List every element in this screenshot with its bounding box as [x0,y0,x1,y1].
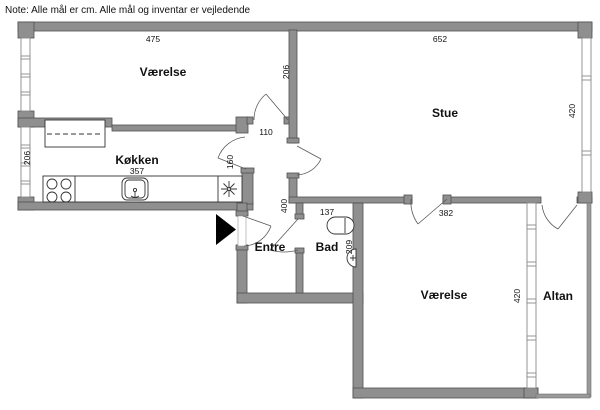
door-arc-vaerelse-top [254,94,266,120]
dim-vaerelse-top-width: 475 [146,34,160,44]
wall-segment [18,22,34,38]
door-leaf-entrance [243,216,271,226]
front-door-leaf [238,216,246,246]
fixtures [43,120,356,267]
dim-hall-width: 110 [259,127,273,137]
wall-segment [289,30,297,143]
dim-stue-width: 652 [433,34,447,44]
dim-koekken-opening: 160 [225,155,235,169]
window-tick [527,336,536,340]
balcony-rail-right [587,203,591,397]
wall-segment [236,117,248,133]
wall-segment [289,197,412,203]
dim-hall-length: 400 [279,199,289,213]
window-tick [21,92,30,95]
burner [61,179,71,189]
dim-vaerelse-bottom-width: 382 [439,208,453,218]
door-jamb [236,211,248,216]
entrance-arrow-icon [216,214,236,245]
dim-koekken-depth: 206 [22,151,32,165]
toilet-icon [327,217,354,234]
room-label-vaerelse-bottom: Værelse [421,288,468,302]
wall-segment [18,202,253,210]
floor-plan-drawing: Note: Alle mål er cm. Alle mål og invent… [0,0,600,410]
dim-bad-width: 137 [320,207,334,217]
window [527,203,536,388]
door-jamb [247,117,253,124]
door-arc-stue [297,159,321,175]
kitchen-closet [45,120,105,147]
window-tick [21,56,30,59]
wall-segment [18,22,592,31]
wall-segment [112,125,240,131]
door-arc-altan [542,205,558,229]
lamp-center [228,188,231,191]
door-jamb [241,168,254,173]
dim-vaerelse-bottom-depth: 420 [512,289,522,303]
room-label-bad: Bad [316,240,339,254]
balcony-rail-bottom [536,394,590,398]
door-leaf-stue [297,146,321,159]
door-leaf-vaerelse-top [266,94,288,120]
dim-vaerelse-top-depth: 206 [281,65,291,79]
window-tick [21,145,30,148]
plan-note: Note: Alle mål er cm. Alle mål og invent… [5,4,251,16]
wall-segment [353,203,363,398]
wall-segment [578,22,592,38]
dim-stue-depth: 420 [567,104,577,118]
door-jamb [295,214,304,219]
dim-koekken-length: 357 [130,166,144,176]
window-tick [582,151,591,155]
toilet-body [327,217,354,234]
window-tick [527,299,536,303]
doors [218,94,577,252]
burner [47,179,57,189]
wall-segment [443,197,541,203]
window-tick [21,74,30,77]
wall-segment [237,293,363,303]
walls [18,22,592,398]
room-label-vaerelse-top: Værelse [140,65,187,79]
door-jamb [287,138,299,143]
burner [47,192,57,202]
door-jamb [287,173,299,178]
sink-icon [122,178,148,200]
windows [21,38,591,388]
dim-bad-depth: 209 [344,240,354,254]
door-arc-koekken [218,137,245,158]
window-tick [527,262,536,266]
wall-segment [578,192,592,203]
burner [61,192,71,202]
floor-plan-page: Note: Alle mål er cm. Alle mål og invent… [0,0,600,410]
room-label-altan: Altan [543,289,573,303]
wall-segment [296,250,303,293]
window-tick [527,225,536,229]
window [582,38,591,192]
window-tick [582,76,591,80]
window-tick [527,373,536,377]
room-label-entre: Entre [255,240,286,254]
wall-segment [242,170,253,204]
door-leaf-altan [558,205,577,229]
room-label-stue: Stue [432,106,458,120]
room-label-koekken: Køkken [115,153,158,167]
wall-segment [353,388,538,398]
window-tick [21,181,30,184]
